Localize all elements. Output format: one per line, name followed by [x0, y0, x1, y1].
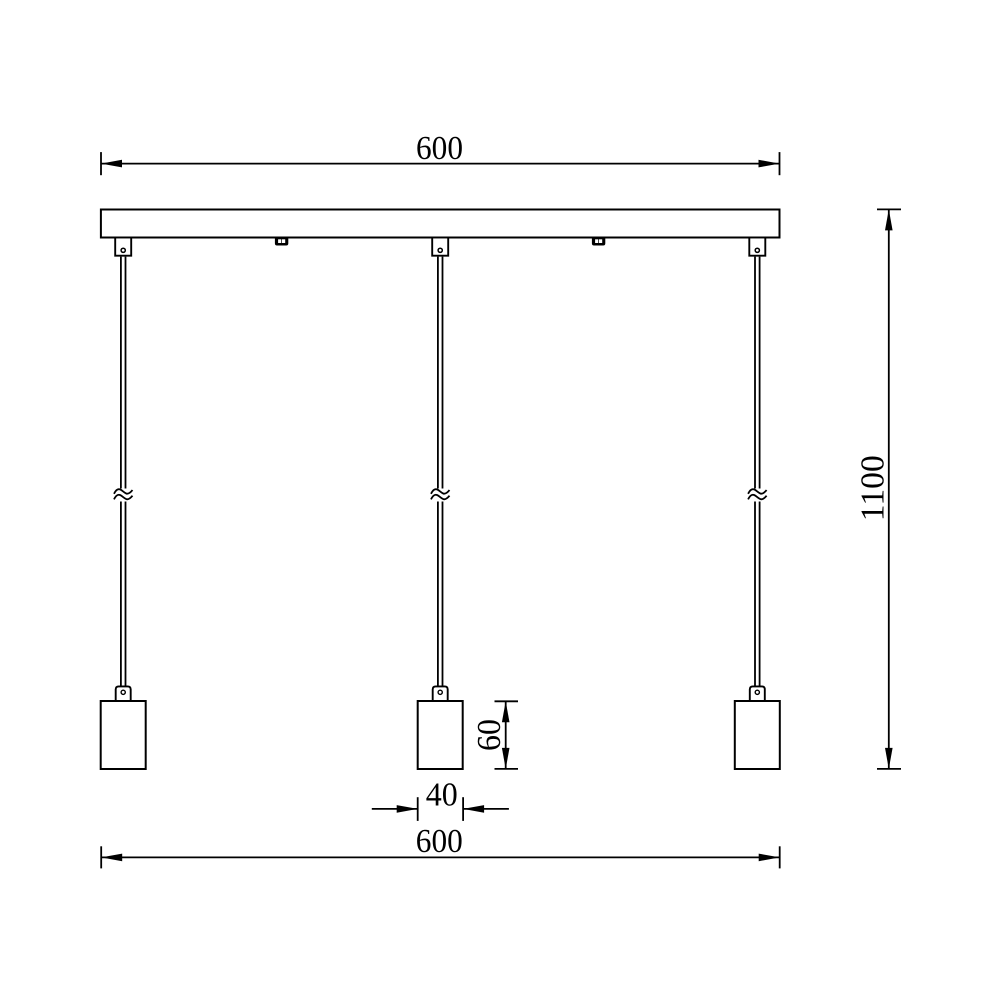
- svg-text:1100: 1100: [854, 455, 891, 521]
- svg-text:40: 40: [426, 777, 458, 814]
- svg-text:600: 600: [416, 130, 463, 167]
- svg-text:600: 600: [416, 823, 463, 860]
- svg-text:60: 60: [471, 719, 508, 751]
